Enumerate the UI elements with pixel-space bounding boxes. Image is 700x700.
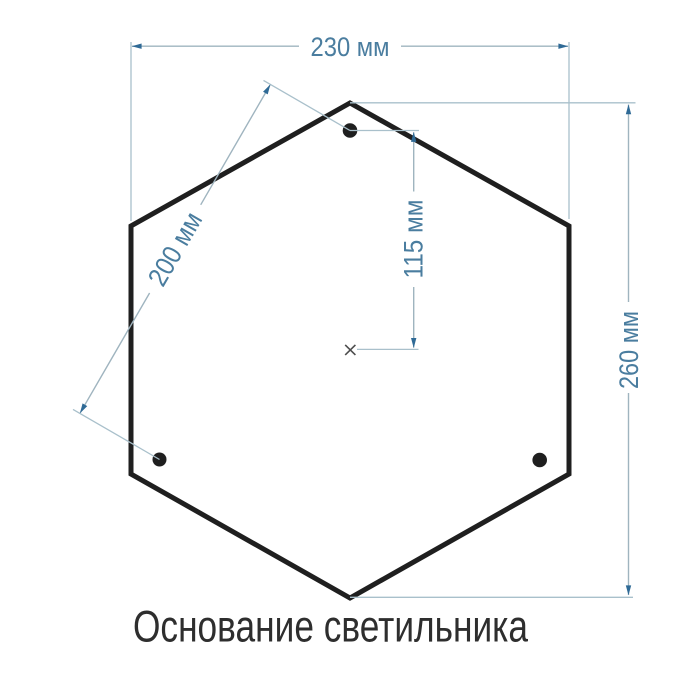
svg-text:200 мм: 200 мм — [142, 207, 208, 291]
svg-text:115 мм: 115 мм — [399, 200, 429, 279]
svg-text:260 мм: 260 мм — [614, 311, 644, 389]
svg-text:230 мм: 230 мм — [311, 32, 390, 62]
svg-text:Основание светильника: Основание светильника — [133, 603, 528, 652]
